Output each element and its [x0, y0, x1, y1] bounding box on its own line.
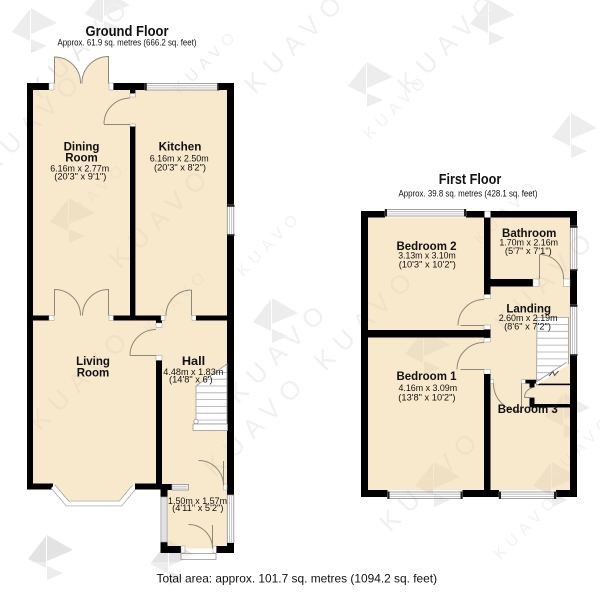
svg-text:Total area: approx. 101.7 sq.: Total area: approx. 101.7 sq. metres (10… [157, 572, 438, 586]
svg-text:(14'8" x 6'): (14'8" x 6') [169, 375, 213, 385]
svg-text:Approx. 39.8 sq. metres (428.1: Approx. 39.8 sq. metres (428.1 sq. feet) [399, 189, 538, 199]
svg-text:Kitchen: Kitchen [159, 141, 202, 153]
svg-text:(13'8" x 10'2"): (13'8" x 10'2") [398, 392, 455, 402]
svg-text:(4'11" x 5'2"): (4'11" x 5'2") [172, 503, 223, 513]
svg-text:First Floor: First Floor [439, 172, 502, 188]
svg-text:Dining: Dining [64, 141, 100, 153]
svg-text:(5'7" x 7'1"): (5'7" x 7'1") [505, 246, 552, 256]
svg-text:Approx. 61.9 sq. metres (666.2: Approx. 61.9 sq. metres (666.2 sq. feet) [58, 37, 197, 47]
